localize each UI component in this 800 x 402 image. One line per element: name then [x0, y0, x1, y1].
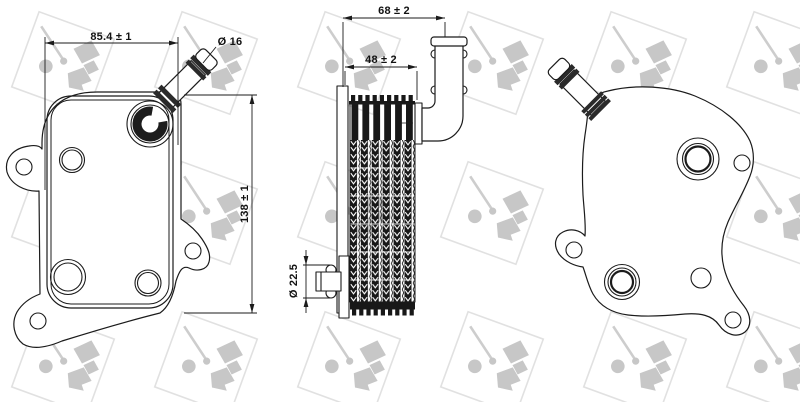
nrf-logo-watermark-icon — [441, 162, 544, 265]
front-pipe-stub — [153, 45, 221, 113]
front-gasket-outline — [6, 92, 209, 347]
back-body-outline — [556, 87, 754, 335]
dim-pipe-od-label: Ø 16 — [218, 36, 243, 48]
side-elbow-pipe — [415, 37, 467, 144]
nrf-logo-watermark-icon — [441, 312, 544, 402]
side-bottom-plate-bar — [350, 302, 415, 310]
dim-front-width-label: 85.4 ± 1 — [90, 31, 131, 43]
dim-side-overall-label: 68 ± 2 — [378, 5, 410, 17]
side-bottom-teeth — [352, 310, 414, 316]
side-top-teeth — [351, 95, 413, 101]
back-view — [545, 55, 754, 336]
nrf-logo-watermark-icon — [298, 312, 401, 402]
nrf-logo-watermark-icon — [727, 12, 800, 115]
dim-port-od-label: Ø 22.5 — [288, 264, 300, 298]
back-pipe-stub — [545, 55, 611, 121]
nrf-logo-watermark-icon — [584, 312, 687, 402]
dim-front-height-label: 138 ± 1 — [239, 185, 251, 223]
oil-cooler-technical-drawing: 85.4 ± 1 Ø 16 138 ± 1 68 ± 2 48 ± 2 Ø 22… — [0, 0, 800, 402]
nrf-logo-watermark-icon — [155, 312, 258, 402]
dim-side-core-label: 48 ± 2 — [365, 54, 397, 66]
side-elbow-bracket — [415, 103, 422, 144]
side-core-mesh — [350, 140, 415, 302]
technical-drawing-page: 85.4 ± 1 Ø 16 138 ± 1 68 ± 2 48 ± 2 Ø 22… — [0, 0, 800, 402]
